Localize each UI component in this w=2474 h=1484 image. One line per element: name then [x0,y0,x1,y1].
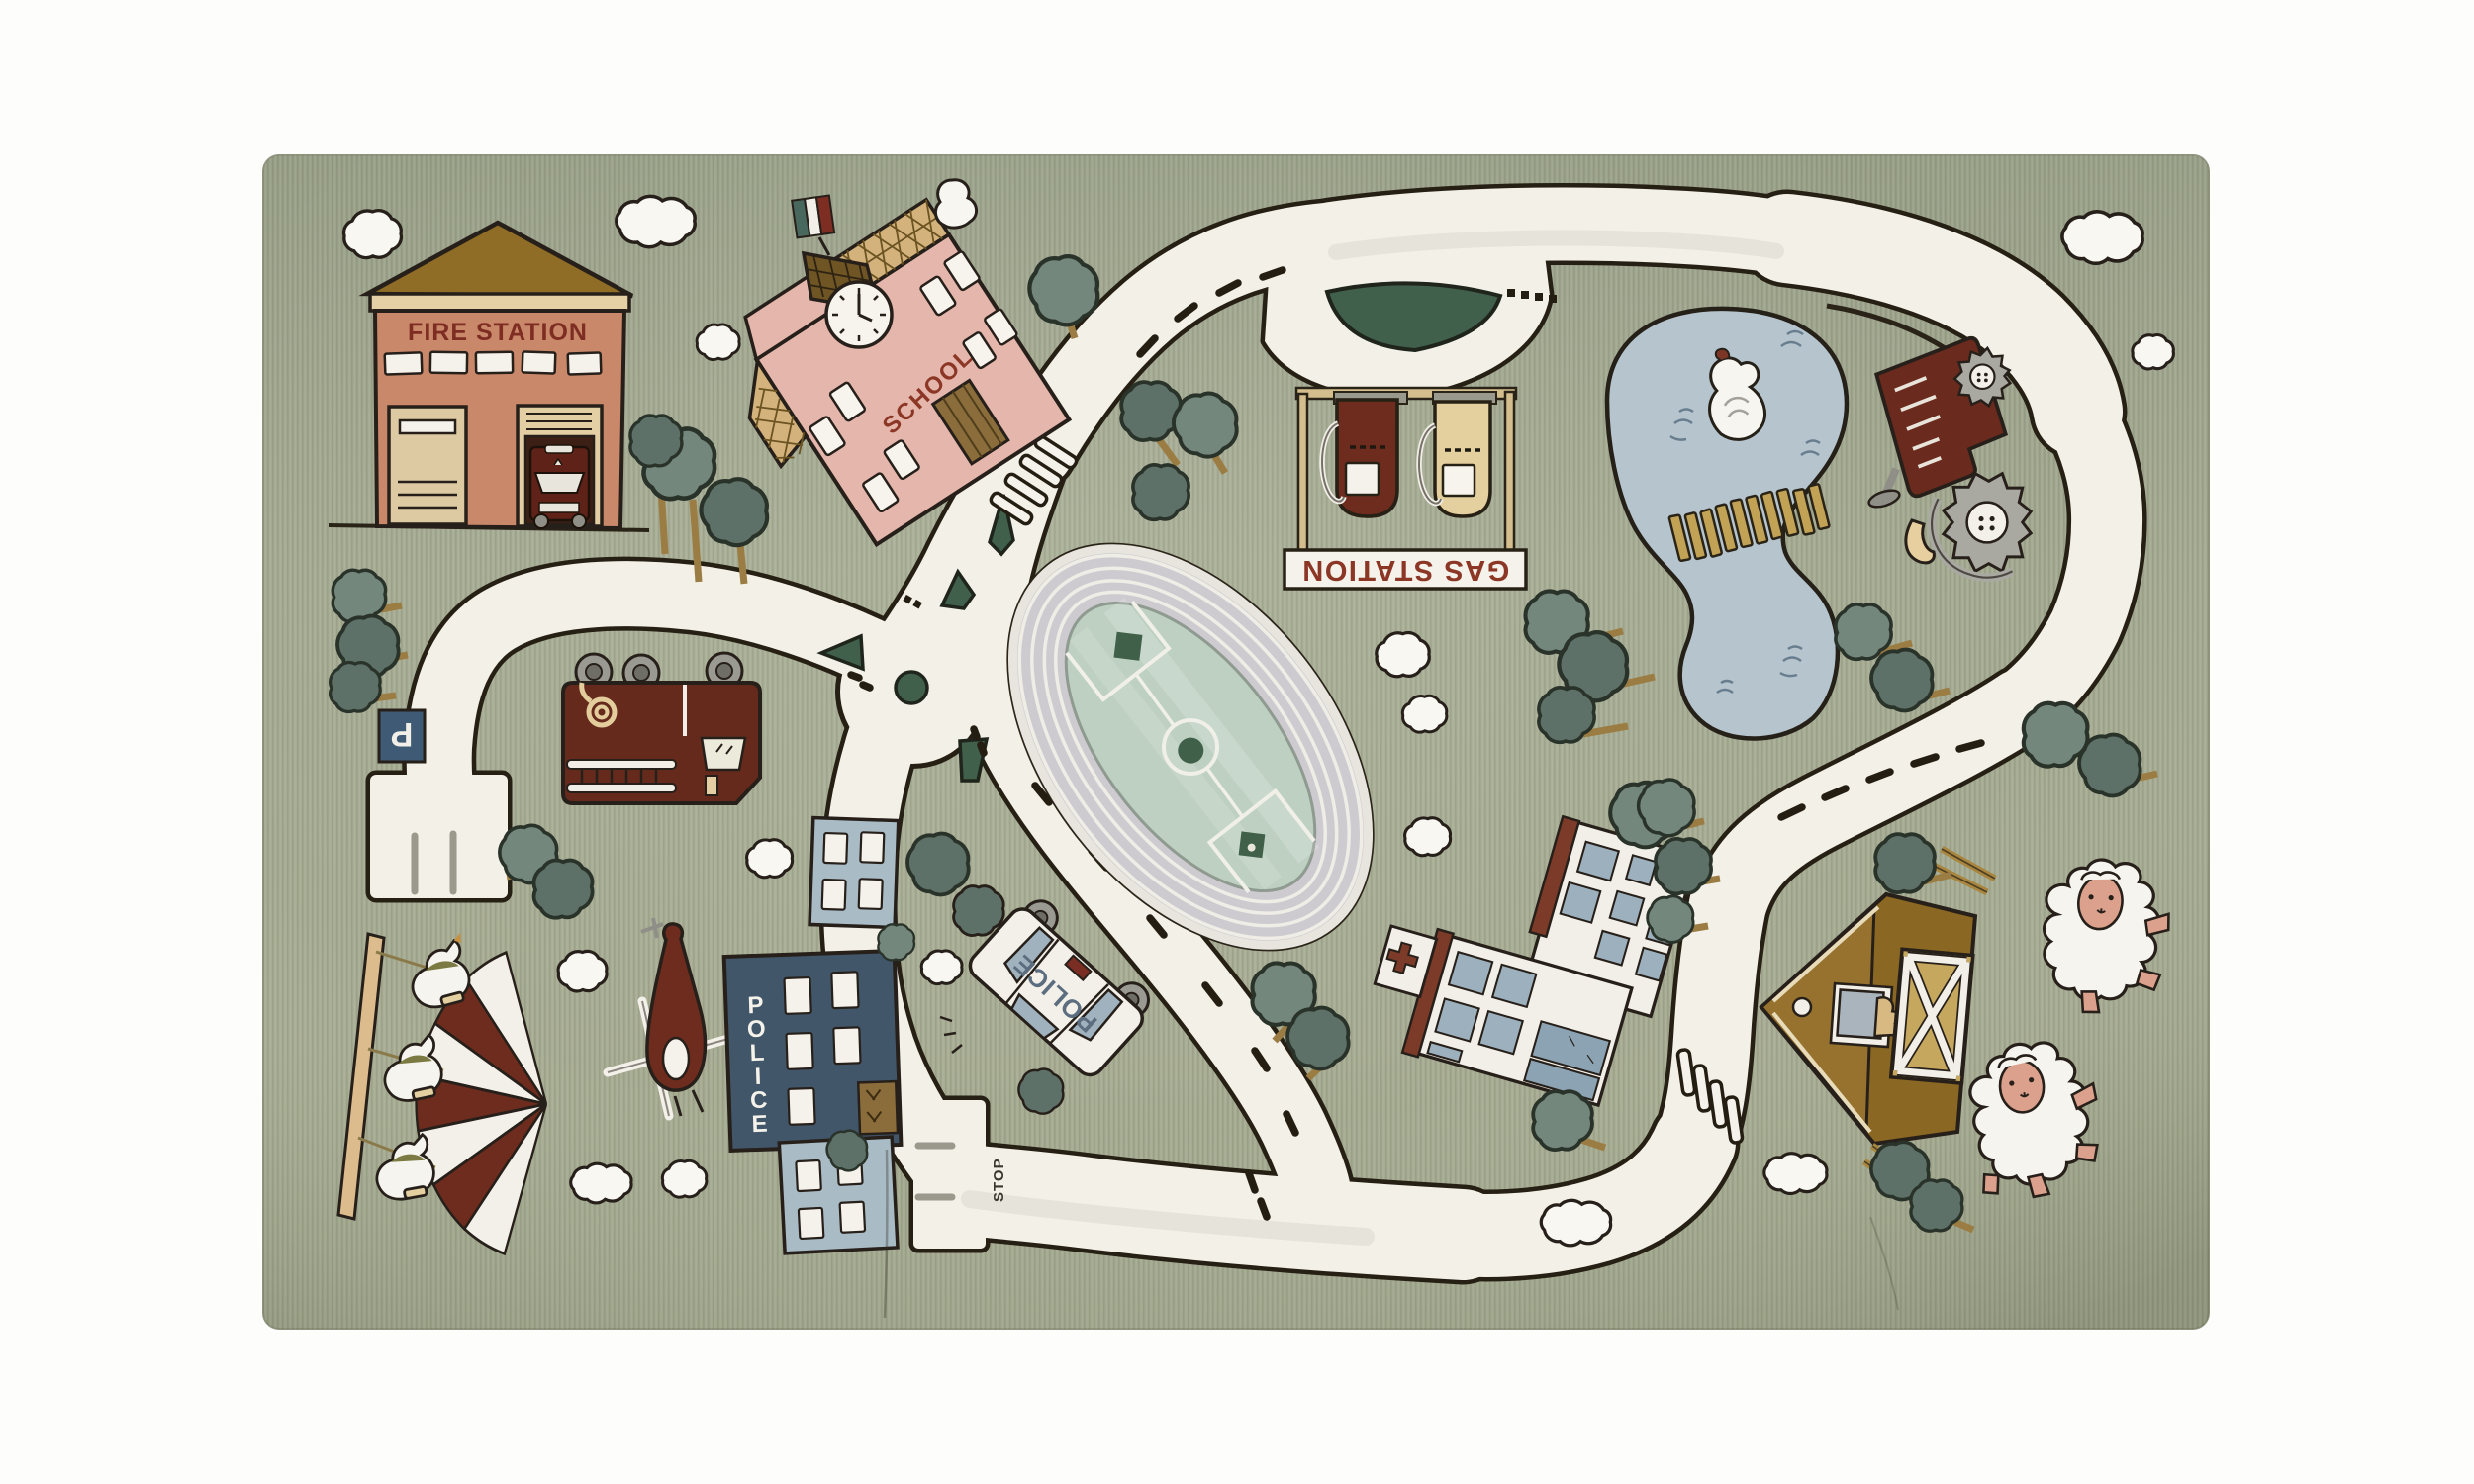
svg-text:FIRE STATION: FIRE STATION [408,319,588,346]
svg-text:E: E [751,1111,768,1139]
svg-text:P: P [391,715,414,753]
svg-text:STOP: STOP [991,1158,1007,1202]
svg-text:GAS STATION: GAS STATION [1301,554,1509,586]
